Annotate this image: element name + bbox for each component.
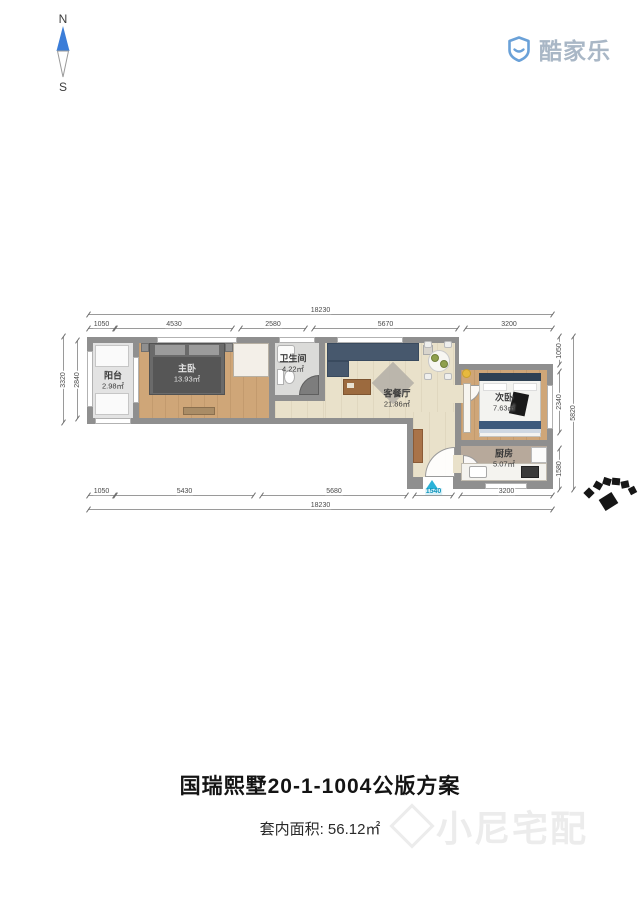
second-bed-stripe <box>479 421 541 429</box>
dim-bottom-total: 18230 <box>88 509 553 510</box>
dim-top-2: 4530 <box>115 328 233 329</box>
second-bedroom-door-gap <box>453 385 463 403</box>
master-bed-pillow <box>189 345 219 355</box>
room-label-master-bedroom: 主卧 13.93㎡ <box>174 364 200 385</box>
dining-chair <box>424 373 432 380</box>
plant <box>431 354 439 362</box>
dim-right-3: 1580 <box>559 449 560 489</box>
bathroom-name: 卫生间 <box>279 354 306 364</box>
dim-top-5: 3200 <box>465 328 553 329</box>
dim-top-4: 5670 <box>313 328 458 329</box>
second-bed-pillow <box>483 383 507 391</box>
dim-left-inner: 2840 <box>77 341 78 418</box>
bedroom-lamp <box>462 369 471 378</box>
master-bed-pillow <box>155 345 185 355</box>
kujiale-shield-icon <box>506 36 532 62</box>
fridge <box>531 447 547 463</box>
master-bench <box>183 407 215 415</box>
dim-left-outer: 3320 <box>63 337 64 422</box>
living-dining-area: 21.86㎡ <box>383 400 410 409</box>
bathroom-area: 4.22㎡ <box>279 365 306 374</box>
brand-logo: 酷家乐 <box>506 32 611 66</box>
plan-area-label: 套内面积: 56.12㎡ <box>0 818 640 839</box>
balcony-door-window <box>133 357 139 403</box>
dining-chair <box>444 341 452 348</box>
second-bed-headboard <box>479 373 541 381</box>
sofa-chaise <box>327 361 349 377</box>
second-bedroom-area: 7.63㎡ <box>493 404 515 413</box>
compass-north-label: N <box>48 12 78 26</box>
room-label-second-bedroom: 次卧 7.63㎡ <box>493 393 515 414</box>
compass-south-label: S <box>48 80 78 94</box>
brand-name: 酷家乐 <box>539 32 611 66</box>
kitchen-area: 5.07㎡ <box>493 460 515 469</box>
compass: N S <box>48 12 78 98</box>
nightstand-left <box>141 343 149 352</box>
room-label-kitchen: 厨房 5.07㎡ <box>493 449 515 470</box>
room-label-balcony: 阳台 2.98㎡ <box>102 371 124 392</box>
second-bed-pillow <box>513 383 537 391</box>
balcony-washer <box>95 393 129 415</box>
floorplan-page: N S 酷家乐 <box>0 0 640 905</box>
second-bedroom-window <box>547 385 553 429</box>
kitchen-sink <box>469 466 487 478</box>
dim-right-total: 5820 <box>573 337 574 489</box>
master-bedroom-name: 主卧 <box>178 364 196 374</box>
dim-top-total: 18230 <box>88 314 553 315</box>
compass-needle-icon <box>54 26 72 80</box>
sofa <box>327 343 419 361</box>
kitchen-name: 厨房 <box>495 449 513 459</box>
dim-bottom-5: 3200 <box>460 495 553 496</box>
second-bedroom-name: 次卧 <box>495 393 513 403</box>
room-label-bathroom: 卫生间 4.22㎡ <box>279 354 306 375</box>
plant <box>440 360 448 368</box>
balcony-window <box>87 351 93 407</box>
dim-right-2: 2340 <box>559 372 560 432</box>
bathroom-window <box>279 337 315 343</box>
living-dining-name: 客餐厅 <box>383 389 410 399</box>
dim-bottom-2: 5430 <box>115 495 254 496</box>
coffee-table-tray <box>347 383 354 388</box>
balcony-name: 阳台 <box>104 371 122 381</box>
balcony-cabinet <box>95 345 129 367</box>
dining-chair <box>424 341 432 348</box>
dim-right-1: 1050 <box>559 337 560 364</box>
nightstand-right <box>225 343 233 352</box>
dim-top-3: 2580 <box>240 328 306 329</box>
floorplan: 阳台 2.98㎡ 主卧 13.93㎡ 卫生间 4.22㎡ 客餐厅 21.86㎡ … <box>87 337 553 489</box>
wardrobe <box>233 343 269 377</box>
stove <box>521 466 539 478</box>
second-bed-stripe-light <box>479 429 541 433</box>
master-bedroom-area: 13.93㎡ <box>174 375 200 384</box>
dim-bottom-entry: 1540 <box>414 495 453 496</box>
hallway-floor <box>275 401 325 418</box>
balcony-bottom-window <box>95 418 131 424</box>
dim-top-1: 1050 <box>88 328 115 329</box>
room-label-living-dining: 客餐厅 21.86㎡ <box>383 389 410 410</box>
plan-title: 国瑞熙墅20-1-1004公版方案 <box>0 770 640 800</box>
dim-bottom-3: 5680 <box>261 495 407 496</box>
dining-chair <box>444 373 452 380</box>
slim-cabinet <box>463 383 471 433</box>
dim-bottom-1: 1050 <box>88 495 115 496</box>
balcony-area: 2.98㎡ <box>102 382 124 391</box>
shoe-cabinet <box>413 429 423 463</box>
